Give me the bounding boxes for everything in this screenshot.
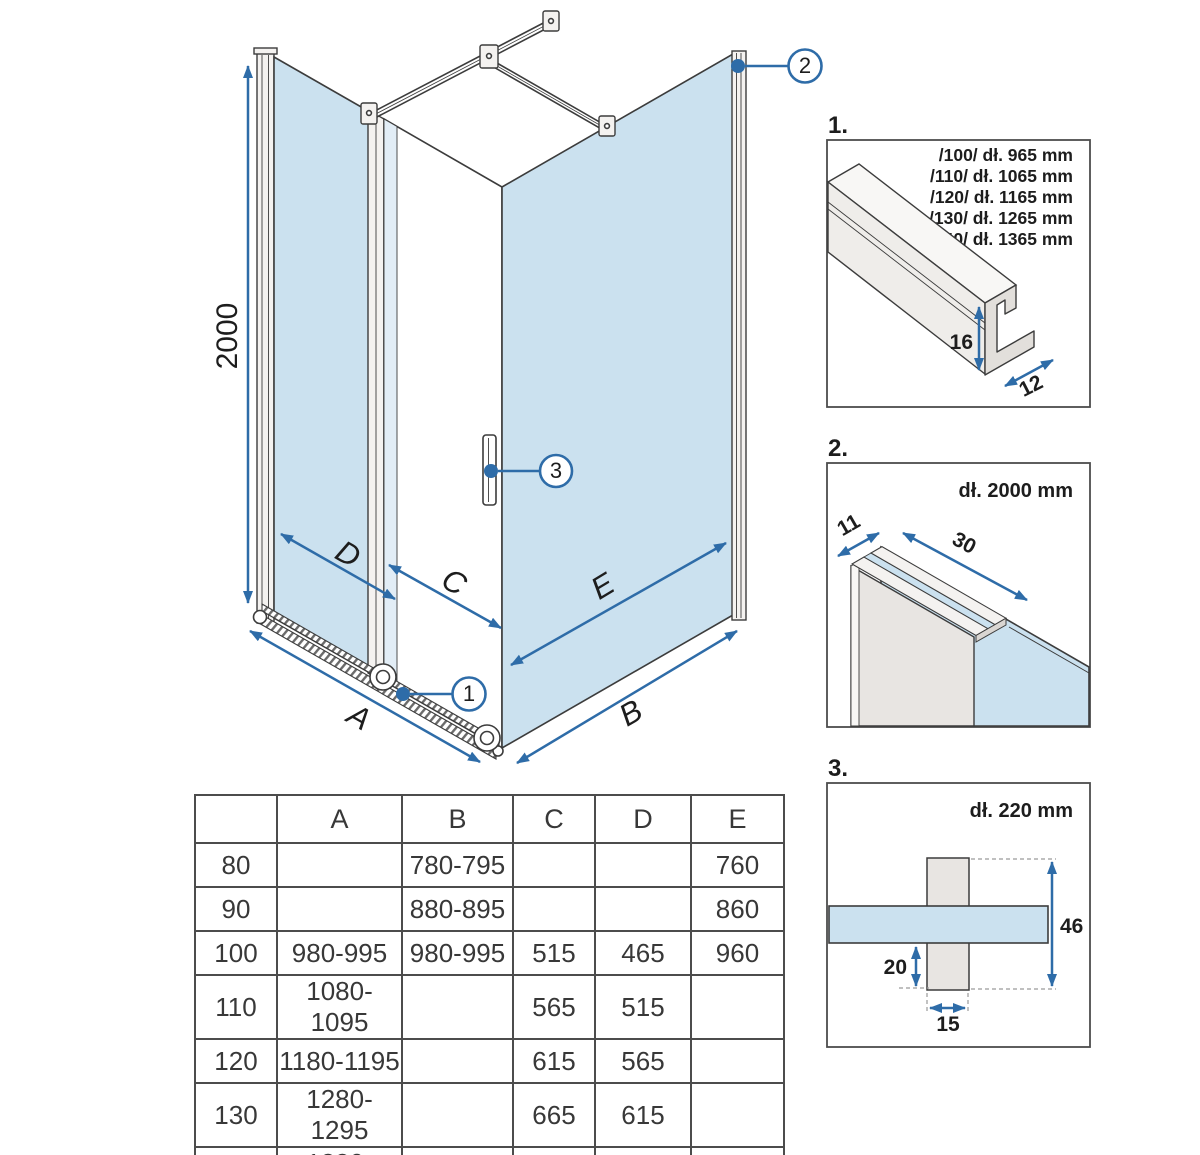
fixed-panel-profile	[368, 110, 384, 682]
profile-length-option: /120/ dł. 1165 mm	[930, 187, 1073, 207]
dim-handle-height: 46	[1052, 862, 1083, 986]
dim-30-label: 30	[948, 528, 979, 559]
rail-end-cap	[254, 611, 267, 624]
marker-1-number: 1	[463, 681, 475, 706]
dim-profile-width: 12	[1005, 360, 1053, 402]
dim-46-label: 46	[1060, 915, 1083, 938]
cell-b: 780-795	[402, 843, 513, 887]
cell-d: 565	[595, 1039, 691, 1083]
cell-c: 565	[513, 975, 595, 1039]
cell-size: 100	[195, 931, 277, 975]
sliding-door	[384, 119, 502, 749]
profile-length-option: /100/ dł. 965 mm	[939, 145, 1073, 165]
col-header-size	[195, 795, 277, 843]
dim-20-label: 20	[884, 956, 907, 979]
glass-pane	[829, 906, 1048, 943]
dim-12-label: 12	[1015, 371, 1046, 402]
cell-d	[595, 843, 691, 887]
cell-a: 1180-1195	[277, 1039, 402, 1083]
door-roller	[370, 664, 396, 690]
cell-c: 615	[513, 1039, 595, 1083]
cell-a: 1080-1095	[277, 975, 402, 1039]
profile-length-option: /110/ dł. 1065 mm	[930, 166, 1073, 186]
cell-e	[691, 975, 784, 1039]
cell-b	[402, 1083, 513, 1147]
cell-size: 80	[195, 843, 277, 887]
table-row: 130 1280-1295 665 615	[195, 1083, 784, 1147]
cell-a: 980-995	[277, 931, 402, 975]
cell-d	[595, 887, 691, 931]
detail-2-index: 2.	[828, 435, 848, 462]
cell-a	[277, 843, 402, 887]
cell-a: 1280-1295	[277, 1083, 402, 1147]
detail-3-length: dł. 220 mm	[970, 800, 1073, 822]
cell-b	[402, 1039, 513, 1083]
cell-e	[691, 1083, 784, 1147]
cell-a	[277, 887, 402, 931]
detail-2-length: dł. 2000 mm	[958, 480, 1073, 502]
handle-section-drawing	[829, 858, 1056, 1012]
cell-d: 665	[595, 1147, 691, 1155]
marker-2-number: 2	[799, 53, 811, 78]
cell-a: 1380-1395	[277, 1147, 402, 1155]
profile-length-option: /130/ dł. 1265 mm	[929, 208, 1073, 228]
dim-handle-offset: 20	[884, 947, 916, 986]
table-row: 90 880-895 860	[195, 887, 784, 931]
dim-a-label: A	[340, 696, 377, 738]
cell-e: 760	[691, 843, 784, 887]
dim-wall-profile-depth: 11	[833, 510, 879, 556]
technical-drawing-canvas: 2000	[0, 0, 1200, 1155]
table-row: 120 1180-1195 615 565	[195, 1039, 784, 1083]
dim-15-label: 15	[936, 1013, 960, 1036]
detail-box-1: 1. /100/ dł. 965 mm /110/ dł. 1065 mm /1…	[827, 112, 1090, 407]
table-row: 140 1380-1395 715 665	[195, 1147, 784, 1155]
dim-handle-width: 15	[930, 1008, 965, 1036]
table-row: 110 1080-1095 565 515	[195, 975, 784, 1039]
size-table: A B C D E 80 780-795 760 90 880-895 860 …	[194, 794, 785, 1155]
cell-b	[402, 1147, 513, 1155]
dim-16-label: 16	[950, 331, 973, 354]
dim-height-label: 2000	[211, 303, 244, 370]
detail-box-3: 3. dł. 220 mm 46 20 15	[827, 755, 1090, 1047]
col-header-a: A	[277, 795, 402, 843]
right-wall-profile	[732, 51, 746, 620]
col-header-e: E	[691, 795, 784, 843]
dim-11-label: 11	[833, 510, 864, 541]
cell-e: 860	[691, 887, 784, 931]
cell-c: 515	[513, 931, 595, 975]
cell-d: 515	[595, 975, 691, 1039]
cell-size: 90	[195, 887, 277, 931]
cell-b	[402, 975, 513, 1039]
cell-size: 140	[195, 1147, 277, 1155]
cell-c	[513, 843, 595, 887]
detail-1-index: 1.	[828, 112, 848, 139]
cell-size: 110	[195, 975, 277, 1039]
cell-size: 130	[195, 1083, 277, 1147]
col-header-d: D	[595, 795, 691, 843]
table-row: 80 780-795 760	[195, 843, 784, 887]
marker-3-number: 3	[550, 458, 562, 483]
col-header-c: C	[513, 795, 595, 843]
cell-b: 980-995	[402, 931, 513, 975]
cell-e	[691, 1039, 784, 1083]
door-roller	[474, 725, 500, 751]
cell-e	[691, 1147, 784, 1155]
detail-box-2: 2. dł. 2000 mm 11 30	[827, 435, 1090, 727]
dim-b-label: B	[613, 693, 648, 734]
fixed-panel-glass	[274, 57, 370, 673]
dim-height-2000: 2000	[211, 66, 248, 603]
cell-c: 665	[513, 1083, 595, 1147]
cell-size: 120	[195, 1039, 277, 1083]
cell-c: 715	[513, 1147, 595, 1155]
cell-e: 960	[691, 931, 784, 975]
cell-b: 880-895	[402, 887, 513, 931]
table-header-row: A B C D E	[195, 795, 784, 843]
cell-d: 465	[595, 931, 691, 975]
right-panel-glass	[502, 54, 733, 748]
detail-3-index: 3.	[828, 755, 848, 782]
table-row: 100 980-995 980-995 515 465 960	[195, 931, 784, 975]
wall-profile-drawing	[851, 547, 1089, 726]
main-isometric-drawing: 2000	[211, 11, 822, 763]
col-header-b: B	[402, 795, 513, 843]
cell-c	[513, 887, 595, 931]
cell-d: 615	[595, 1083, 691, 1147]
stabilizer-bars	[361, 11, 615, 136]
door-overlap-strip	[384, 119, 397, 689]
